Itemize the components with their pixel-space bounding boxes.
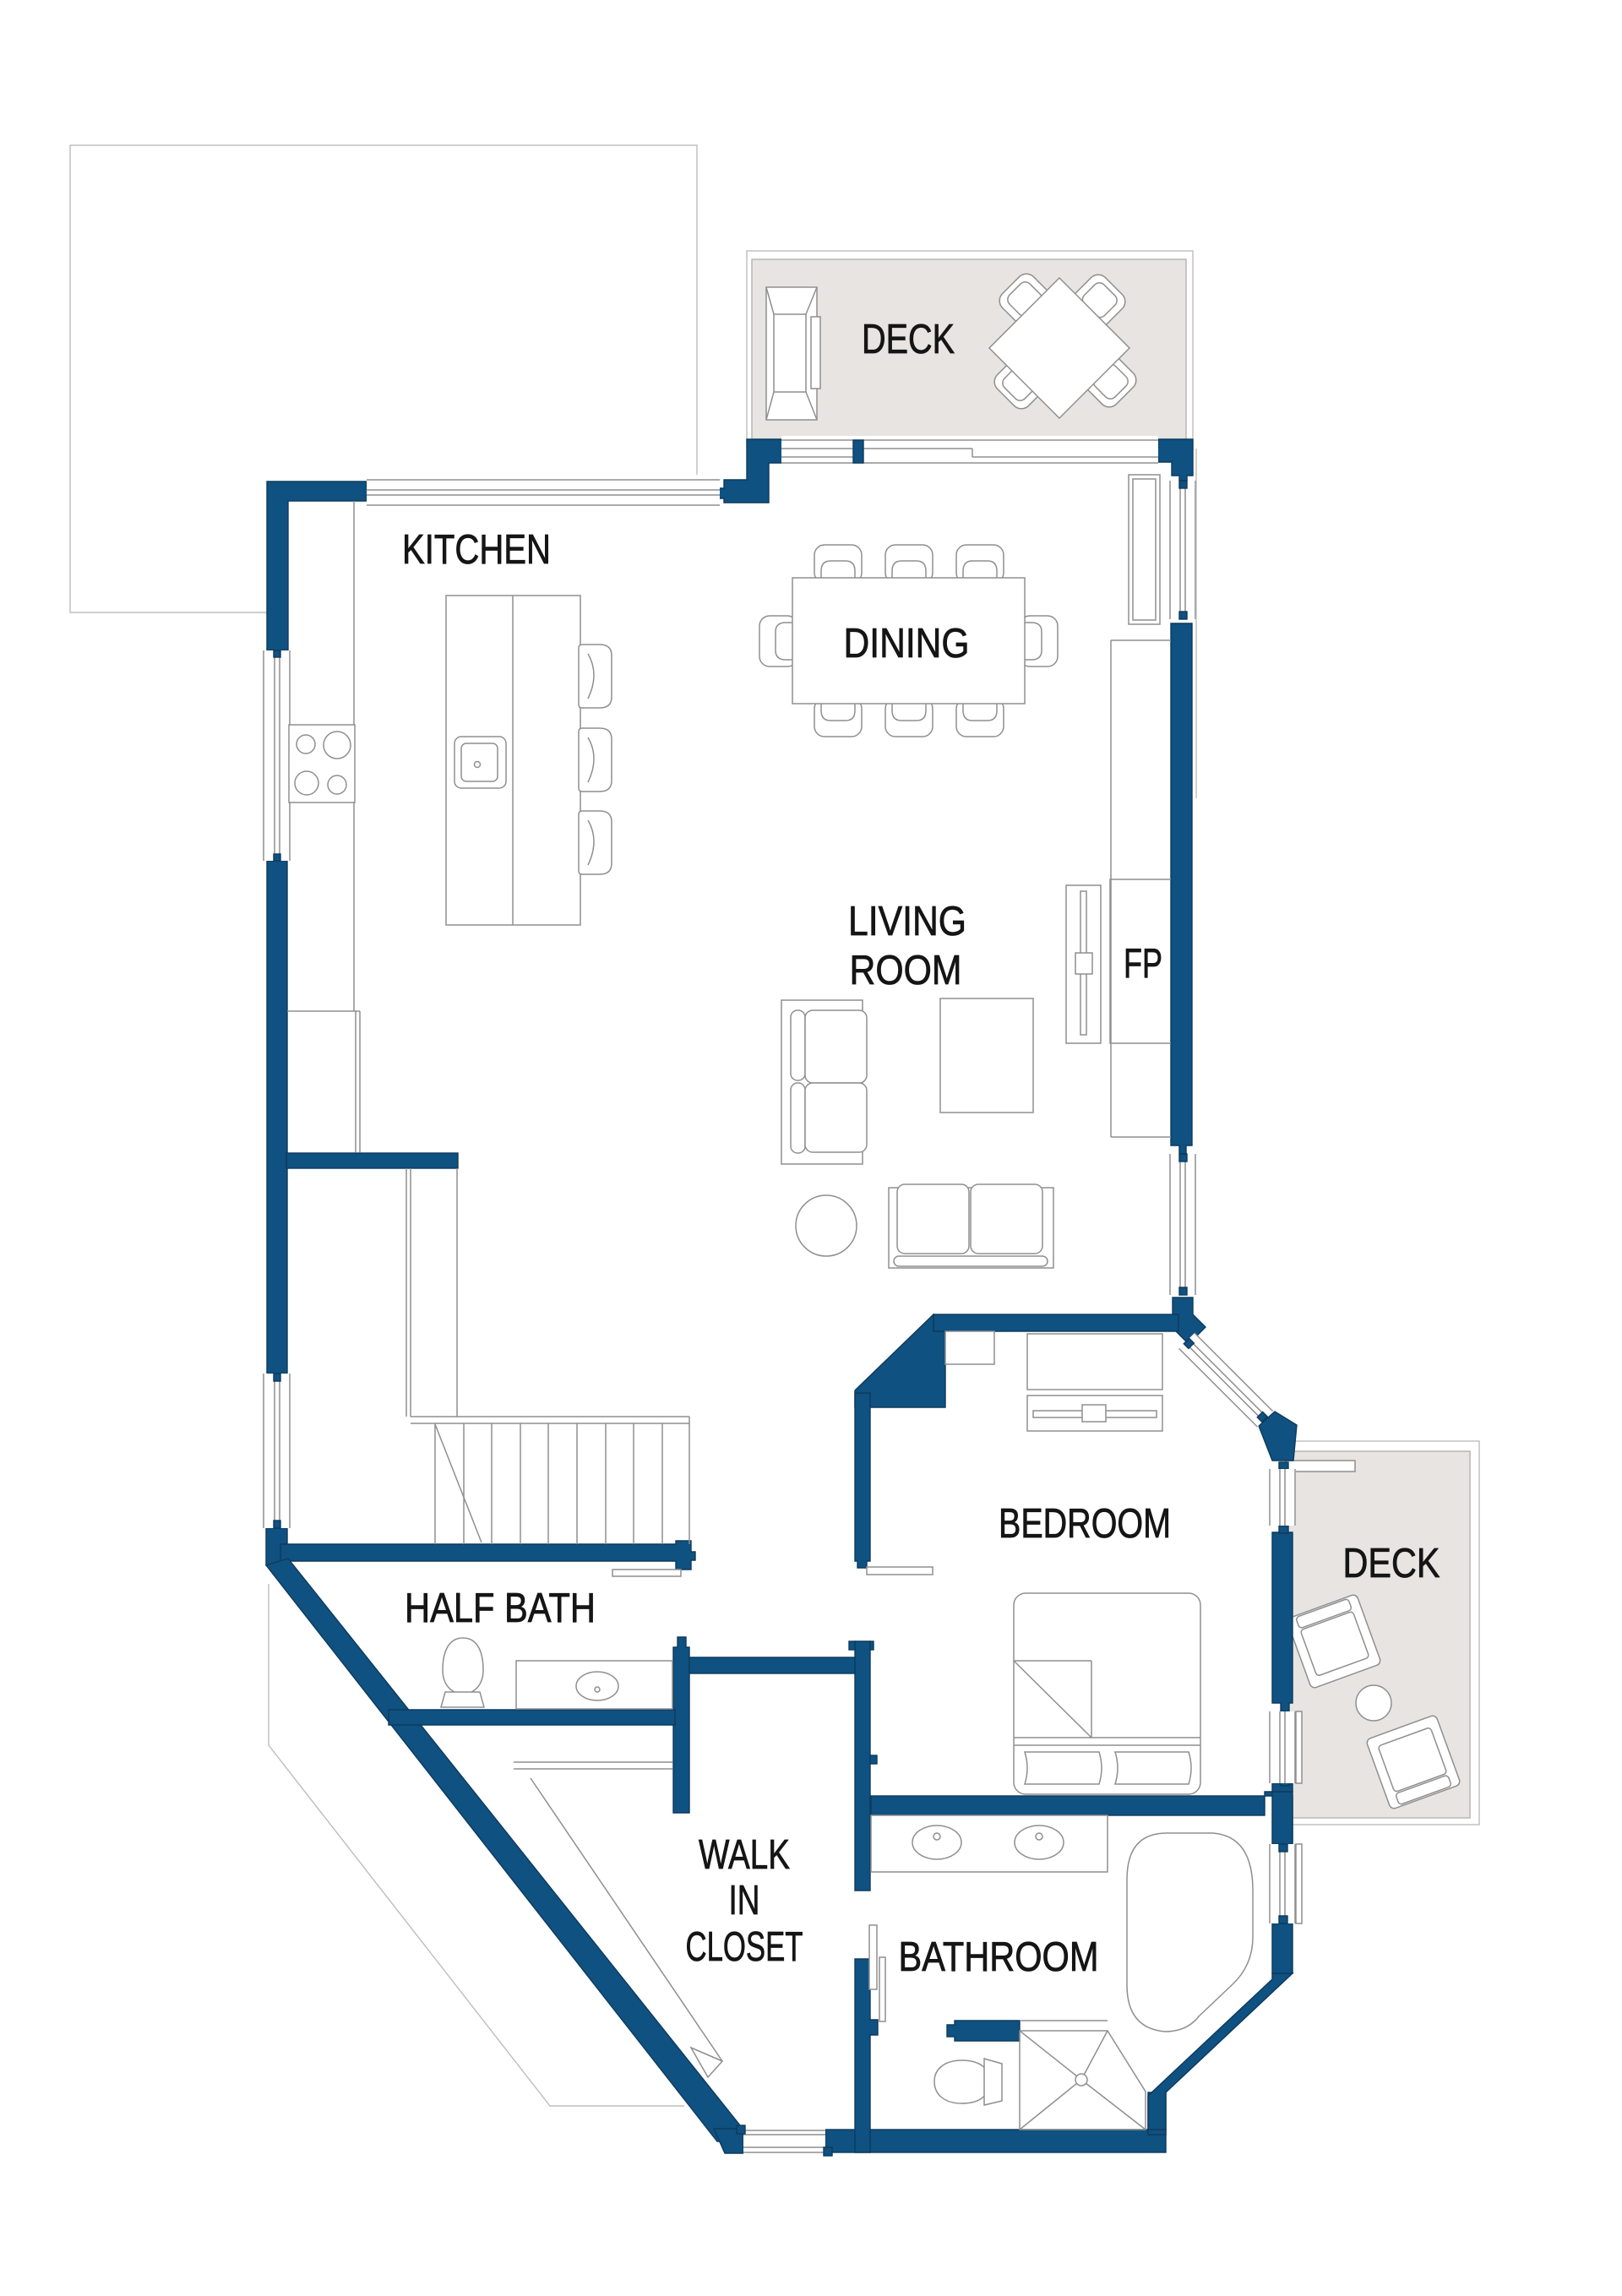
svg-text:WALK: WALK	[699, 1832, 790, 1878]
svg-text:CLOSET: CLOSET	[686, 1924, 803, 1970]
svg-text:DECK: DECK	[1343, 1541, 1440, 1586]
svg-text:DINING: DINING	[844, 621, 970, 666]
svg-text:BEDROOM: BEDROOM	[999, 1501, 1171, 1547]
svg-text:IN: IN	[729, 1878, 760, 1923]
svg-text:FP: FP	[1124, 941, 1162, 987]
svg-text:BATHROOM: BATHROOM	[899, 1934, 1099, 1980]
svg-text:HALF BATH: HALF BATH	[405, 1586, 596, 1631]
svg-text:ROOM: ROOM	[850, 948, 962, 993]
svg-text:DECK: DECK	[862, 317, 955, 362]
svg-text:LIVING: LIVING	[848, 899, 966, 944]
svg-text:KITCHEN: KITCHEN	[402, 527, 551, 573]
